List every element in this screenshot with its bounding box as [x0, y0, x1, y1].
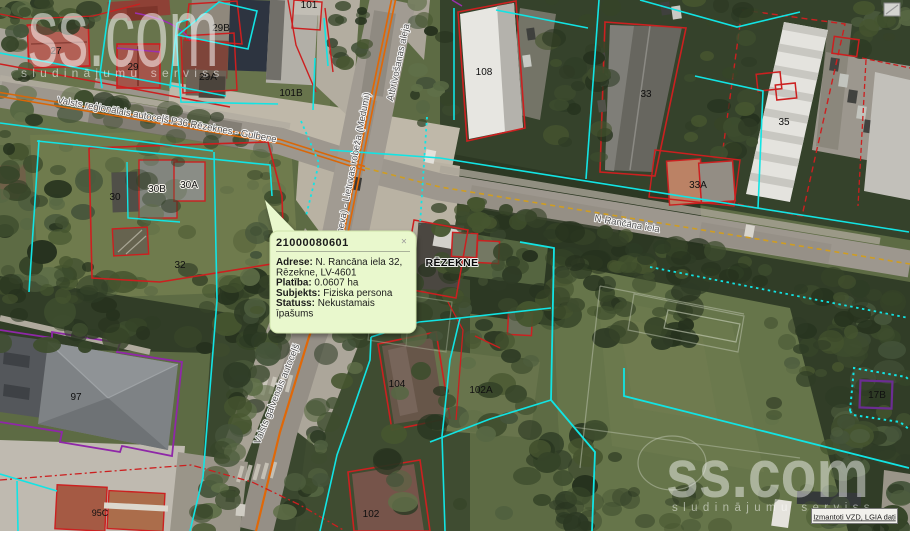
svg-text:95C: 95C — [92, 508, 109, 518]
svg-text:sludinājumu serviss: sludinājumu serviss — [21, 66, 225, 80]
svg-text:RĒZEKNE: RĒZEKNE — [426, 257, 479, 269]
svg-text:102A: 102A — [469, 385, 493, 396]
svg-text:īpašums: īpašums — [276, 309, 313, 320]
svg-text:102: 102 — [363, 509, 380, 520]
svg-text:101B: 101B — [279, 88, 303, 99]
svg-text:Izmantoti VZD, LGIA dati: Izmantoti VZD, LGIA dati — [813, 513, 896, 522]
svg-text:ss.com: ss.com — [666, 436, 869, 512]
svg-text:101: 101 — [301, 0, 318, 11]
svg-text:108: 108 — [476, 67, 493, 78]
svg-text:104: 104 — [389, 379, 406, 390]
svg-text:97: 97 — [70, 392, 82, 403]
svg-text:32: 32 — [174, 260, 186, 271]
svg-text:35: 35 — [778, 117, 790, 128]
svg-text:30B: 30B — [148, 184, 166, 195]
svg-text:33A: 33A — [689, 180, 707, 191]
svg-text:×: × — [401, 237, 407, 248]
svg-text:33: 33 — [640, 89, 652, 100]
svg-text:30A: 30A — [180, 180, 198, 191]
svg-text:21000080601: 21000080601 — [276, 237, 349, 249]
svg-text:30: 30 — [109, 192, 121, 203]
svg-text:17B: 17B — [868, 390, 886, 401]
